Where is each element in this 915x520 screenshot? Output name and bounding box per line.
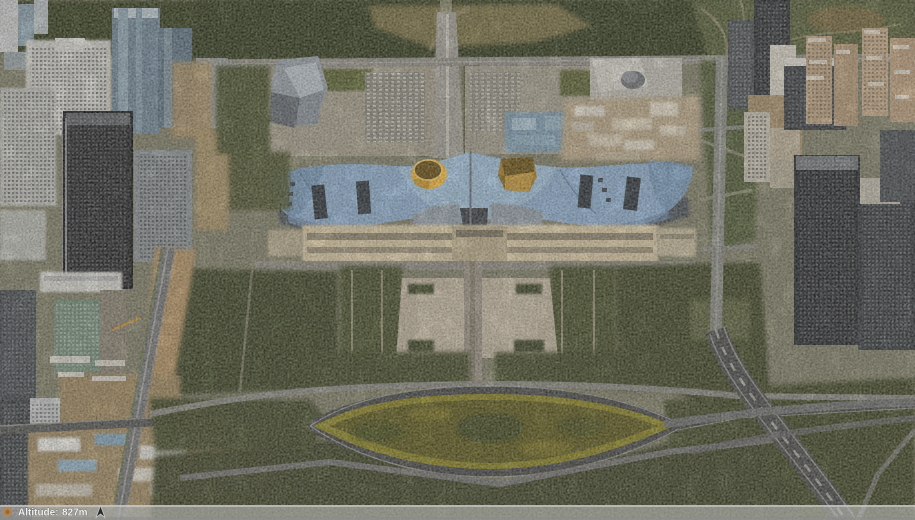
svg-text:Altitude: 827m: Altitude: 827m bbox=[18, 508, 88, 519]
